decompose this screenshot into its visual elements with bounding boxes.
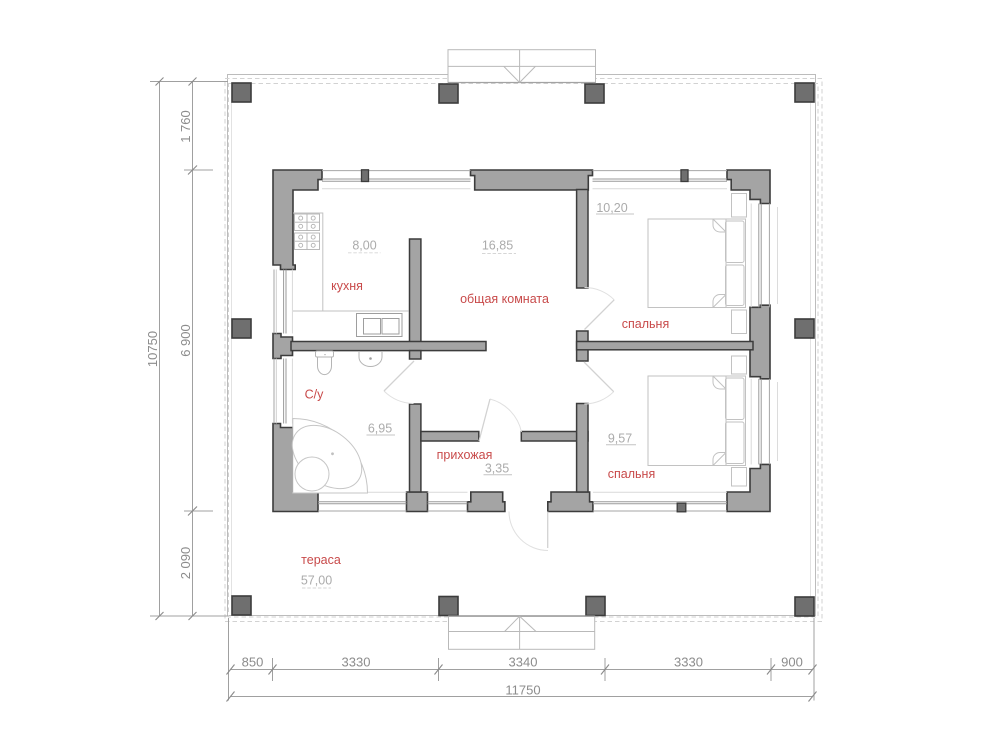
svg-text:9,57: 9,57 [608, 432, 632, 446]
svg-text:3340: 3340 [509, 655, 538, 670]
svg-text:тераса: тераса [301, 553, 341, 567]
svg-text:900: 900 [781, 655, 803, 670]
svg-text:8,00: 8,00 [352, 239, 376, 253]
svg-text:С/у: С/у [305, 388, 325, 402]
svg-text:2 090: 2 090 [178, 547, 193, 580]
svg-text:1 760: 1 760 [178, 110, 193, 143]
svg-text:3330: 3330 [342, 655, 371, 670]
svg-text:спальня: спальня [622, 317, 669, 331]
svg-text:16,85: 16,85 [482, 239, 513, 253]
svg-text:10,20: 10,20 [596, 201, 627, 215]
svg-text:общая комната: общая комната [460, 292, 549, 306]
svg-text:3,35: 3,35 [485, 462, 509, 476]
svg-text:6,95: 6,95 [368, 422, 392, 436]
svg-text:11750: 11750 [505, 683, 540, 698]
svg-text:кухня: кухня [331, 279, 363, 293]
svg-text:6 900: 6 900 [178, 324, 193, 357]
svg-text:прихожая: прихожая [437, 448, 493, 462]
svg-text:57,00: 57,00 [301, 574, 332, 588]
svg-text:10750: 10750 [145, 331, 160, 367]
svg-text:спальня: спальня [608, 467, 655, 481]
svg-text:3330: 3330 [674, 655, 703, 670]
svg-text:850: 850 [242, 655, 264, 670]
